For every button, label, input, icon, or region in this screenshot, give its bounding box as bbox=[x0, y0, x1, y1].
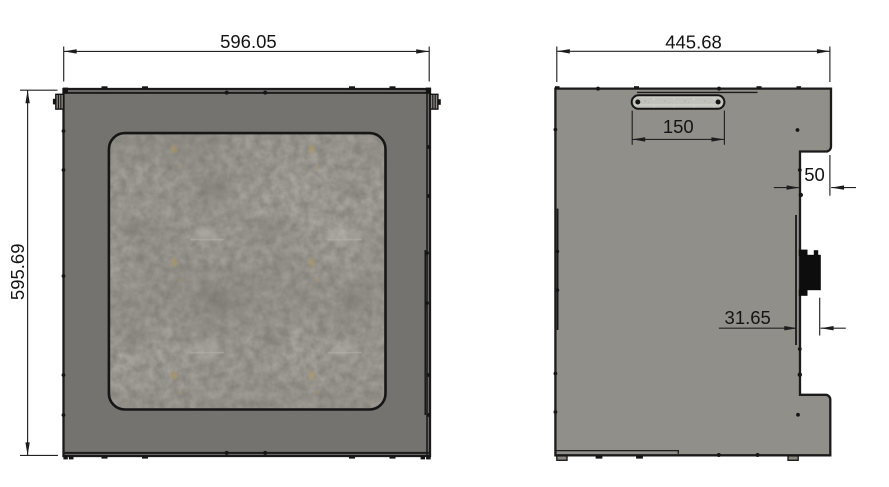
svg-text:31.65: 31.65 bbox=[725, 307, 771, 328]
svg-text:150: 150 bbox=[663, 116, 694, 137]
svg-text:50: 50 bbox=[804, 164, 825, 185]
svg-text:445.68: 445.68 bbox=[665, 31, 722, 52]
svg-text:595.69: 595.69 bbox=[7, 244, 28, 301]
svg-text:596.05: 596.05 bbox=[220, 31, 277, 52]
